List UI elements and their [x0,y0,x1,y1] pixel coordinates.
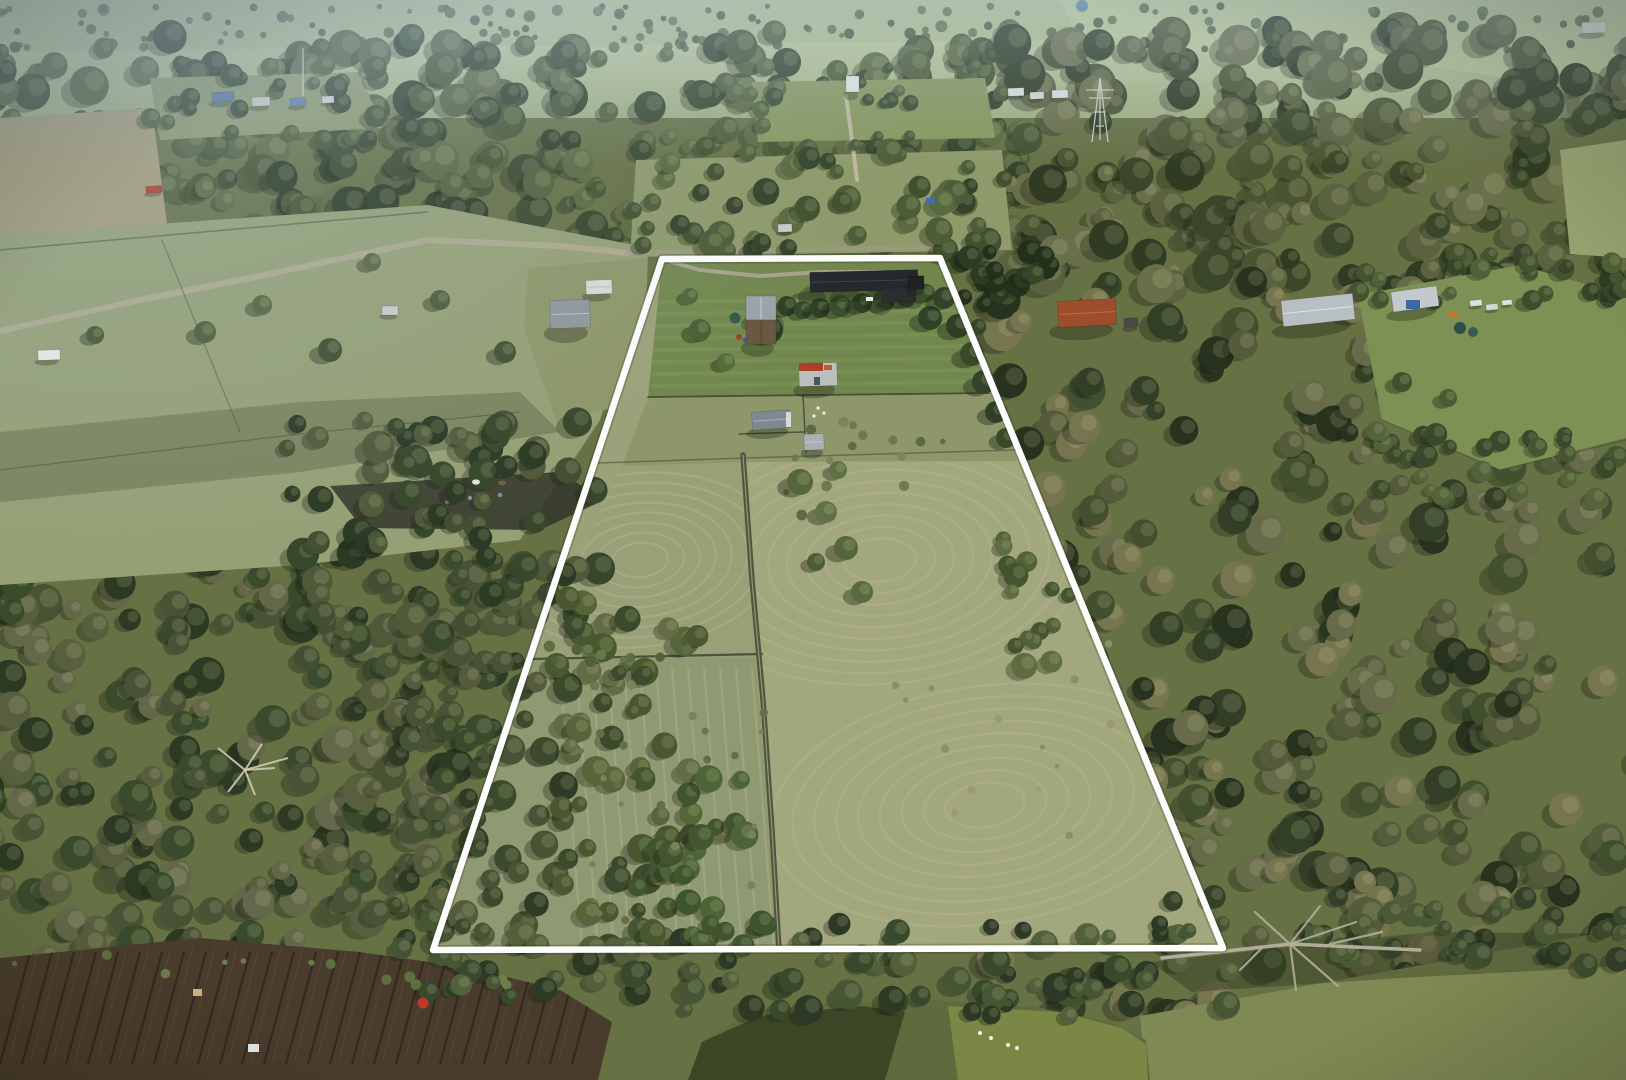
aerial-photo-canvas [0,0,1626,1080]
aerial-photo [0,0,1626,1080]
atmosphere-haze [0,0,1626,1080]
